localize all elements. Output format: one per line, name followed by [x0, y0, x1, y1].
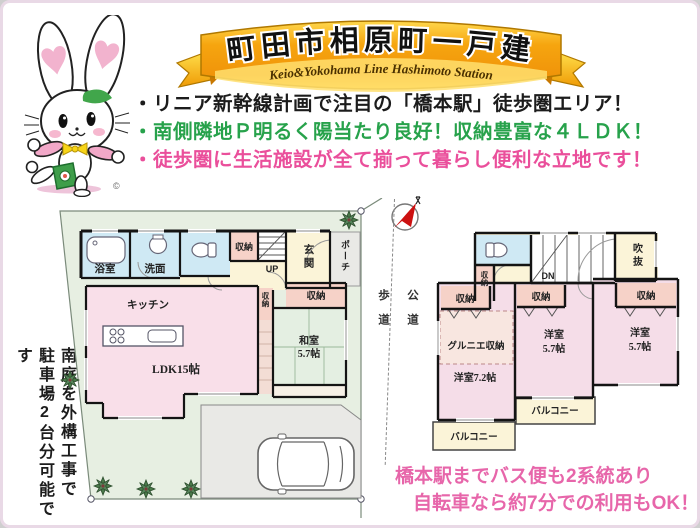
washitsu-veranda	[273, 385, 346, 397]
rabbit-eye-left	[59, 114, 68, 128]
grenier-area	[440, 311, 513, 364]
bush-icon	[94, 477, 112, 495]
bullet-1: ・リニア新幹線計画で注目の「橋本駅」徒歩圏エリア！	[133, 90, 698, 118]
room57a-label-2: 5.7帖	[543, 342, 566, 355]
bathtub-icon	[87, 237, 125, 263]
engawa	[258, 320, 273, 394]
porch-label: ポーチ	[340, 239, 350, 273]
storage-a-label: 収納	[235, 241, 253, 252]
bush-icon	[340, 211, 358, 229]
boundary-pin	[88, 496, 94, 502]
grenier-label: グルニエ収納	[447, 340, 504, 352]
sidewalk-label: 歩道	[375, 289, 391, 338]
flyer-page: © 町田市相原町一戸建 Keio	[0, 0, 700, 528]
washitsu-label-1: 和室	[298, 334, 319, 347]
bush-icon	[61, 371, 79, 389]
title-banner: 町田市相原町一戸建 Keio&Yokohama Line Hashimoto S…	[175, 13, 587, 93]
wash-label: 洗面	[145, 262, 166, 275]
room72-label: 洋室7.2帖	[454, 371, 497, 384]
bullet-2: ・南側隣地Ｐ明るく陽当たり良好！収納豊富な４ＬＤＫ！	[133, 118, 698, 146]
dn-label: DN	[542, 271, 555, 281]
footer-line2: 自転車なら約7分での利用もOK！	[413, 488, 699, 515]
bullet-3: ・徒歩圏に生活施設が全て揃って暮らし便利な立地です！	[133, 146, 698, 174]
entrance-label: 玄関	[303, 243, 314, 271]
toilet-icon	[192, 243, 216, 257]
kitchen-label: キッチン	[127, 299, 169, 311]
closet-right-label: 収納	[636, 290, 655, 302]
storage-small-label: 収納	[480, 270, 489, 288]
bush-icon	[182, 480, 200, 498]
selling-points: ・リニア新幹線計画で注目の「橋本駅」徒歩圏エリア！ ・南側隣地Ｐ明るく陽当たり良…	[133, 90, 698, 174]
rabbit-hand-left	[28, 139, 40, 151]
bath-label: 浴室	[95, 262, 116, 275]
storage-b-label: 収納	[261, 291, 270, 309]
room57a-label-1: 洋室	[544, 328, 564, 341]
footer-note: 橋本駅までバス便も2系統あり 自転車なら約7分での利用もOK！	[395, 461, 699, 515]
floor2-plan: 収納 DN 吹抜 収納 収納 収納 グルニエ収納 洋室7.2帖 洋室 5.7帖 …	[428, 221, 698, 471]
balcony-mid-label: バルコニー	[531, 405, 578, 417]
rabbit-bag	[53, 163, 77, 189]
rabbit-cheek-right	[93, 128, 105, 136]
copyright-mark: ©	[113, 181, 120, 191]
rabbit-hand-right	[112, 151, 124, 163]
side-note-line2: 駐車場2台分可能です	[11, 347, 55, 528]
void-label: 吹抜	[631, 242, 643, 269]
footer-line1: 橋本駅までバス便も2系統あり	[395, 461, 699, 488]
car-icon	[258, 434, 354, 494]
kitchen-counter-icon	[103, 326, 183, 346]
room57b-label-1: 洋室	[630, 326, 650, 339]
up-label: UP	[266, 264, 279, 274]
public-road-label: 公道	[404, 289, 420, 338]
rabbit-eye-right	[87, 112, 96, 126]
balcony-left-label: バルコニー	[450, 431, 497, 443]
room57b-label-2: 5.7帖	[629, 340, 652, 353]
bush-icon	[137, 480, 155, 498]
closet-mid-label: 収納	[531, 291, 550, 303]
storage-c-label: 収納	[306, 290, 325, 302]
rabbit-mascot: ©	[13, 15, 153, 197]
toilet-icon-2f	[486, 243, 507, 257]
floor1-plan: 浴室 洗面 収納 UP 玄関 ポーチ 収納 収納 キッチン LDK15帖 和室 …	[58, 198, 388, 528]
washitsu-label-2: 5.7帖	[298, 347, 321, 360]
closet-left-label: 収納	[455, 293, 474, 305]
rabbit-cheek-left	[49, 130, 61, 138]
boundary-pin	[358, 208, 364, 214]
ldk-label: LDK15帖	[152, 362, 200, 376]
